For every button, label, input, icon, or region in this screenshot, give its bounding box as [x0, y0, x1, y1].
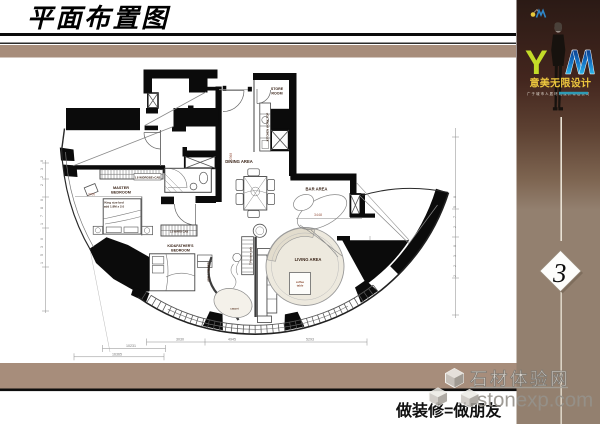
svg-text:stonexp.com: stonexp.com: [477, 389, 593, 412]
svg-text:石材体验网: 石材体验网: [470, 369, 570, 389]
